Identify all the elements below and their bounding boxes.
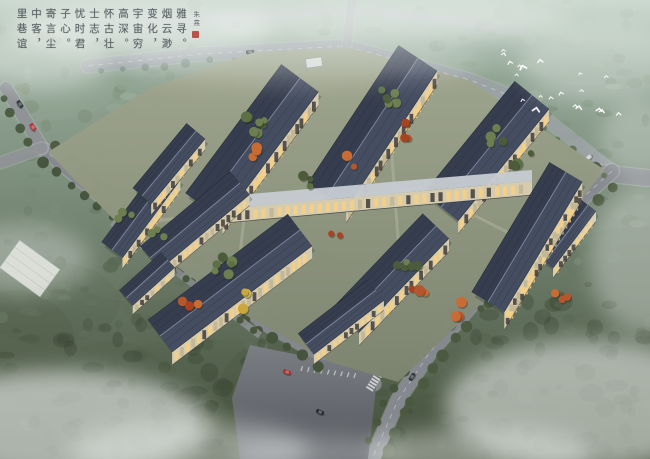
rendering-scene [0, 0, 650, 459]
aerial-render-canvas: 朱熹 雅寻。烟云渺变化，宇宙穷高深。怀古壮士志，忧时君子心。寄言尘中客，里巷谊 [0, 0, 650, 459]
